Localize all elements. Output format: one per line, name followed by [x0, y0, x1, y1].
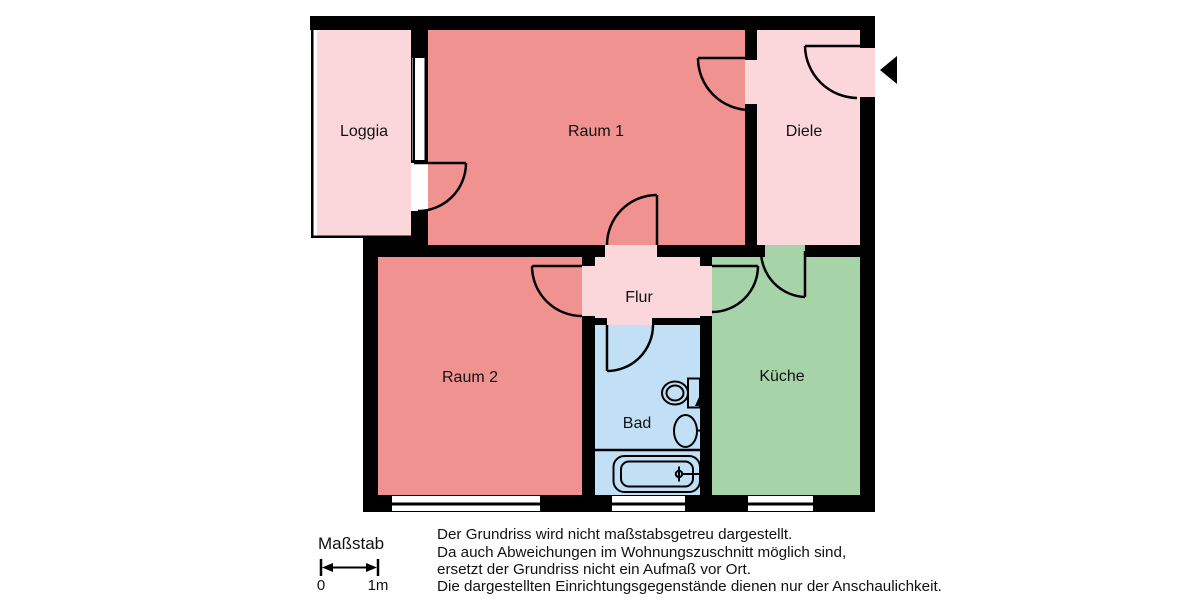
room-label-bad: Bad [623, 415, 651, 432]
opening-raum1-diele [745, 60, 757, 104]
floorplan-svg: Loggia Raum 1 Diele Raum 2 Flur Bad Küch… [0, 0, 1200, 600]
opening-flur-kueche [700, 266, 712, 316]
window-raum2 [392, 496, 540, 511]
disclaimer-line-4: Die dargestellten Einrichtungsgegenständ… [437, 578, 942, 595]
scale-label-start: 0 [317, 577, 325, 594]
room-label-loggia: Loggia [340, 123, 388, 140]
scale-arrowhead-left [322, 563, 333, 572]
window-loggia [413, 58, 427, 160]
window-bad [612, 496, 685, 511]
opening-flur-raum2 [582, 266, 595, 316]
opening-flur-raum1 [605, 245, 657, 257]
disclaimer-text: Der Grundriss wird nicht maßstabsgetreu … [437, 526, 942, 595]
room-label-diele: Diele [786, 123, 823, 140]
window-kueche-line [748, 503, 813, 506]
disclaimer-line-3: ersetzt der Grundriss nicht ein Aufmaß v… [437, 561, 751, 578]
opening-loggia-door [411, 163, 428, 211]
scale-label-end: 1m [368, 577, 389, 594]
disclaimer-line-2: Da auch Abweichungen im Wohnungszuschnit… [437, 544, 846, 561]
floorplan-canvas: Loggia Raum 1 Diele Raum 2 Flur Bad Küch… [0, 0, 1200, 600]
room-label-raum1: Raum 1 [568, 123, 624, 140]
window-bad-line [612, 503, 685, 506]
window-kueche [748, 496, 813, 511]
scale-bar: Maßstab 0 1m [317, 534, 389, 594]
room-label-kueche: Küche [759, 368, 804, 385]
window-loggia-line-1 [413, 58, 415, 160]
scale-title: Maßstab [318, 534, 384, 553]
wall-top [310, 16, 875, 30]
disclaimer-line-1: Der Grundriss wird nicht maßstabsgetreu … [437, 526, 792, 543]
loggia-border-left [311, 30, 314, 238]
opening-diele-kueche [765, 245, 805, 257]
window-loggia-line-2 [425, 58, 427, 160]
room-flur-fill [595, 257, 700, 318]
room-label-raum2: Raum 2 [442, 369, 498, 386]
room-bad-fill [595, 325, 700, 495]
opening-entrance [860, 48, 875, 97]
entrance-arrow-icon [880, 56, 897, 84]
wall-left-lower [363, 236, 378, 512]
room-label-flur: Flur [625, 289, 653, 306]
opening-flur-bad [607, 318, 652, 325]
window-raum2-line [392, 503, 540, 506]
scale-arrowhead-right [366, 563, 377, 572]
loggia-border-bottom [311, 236, 413, 239]
